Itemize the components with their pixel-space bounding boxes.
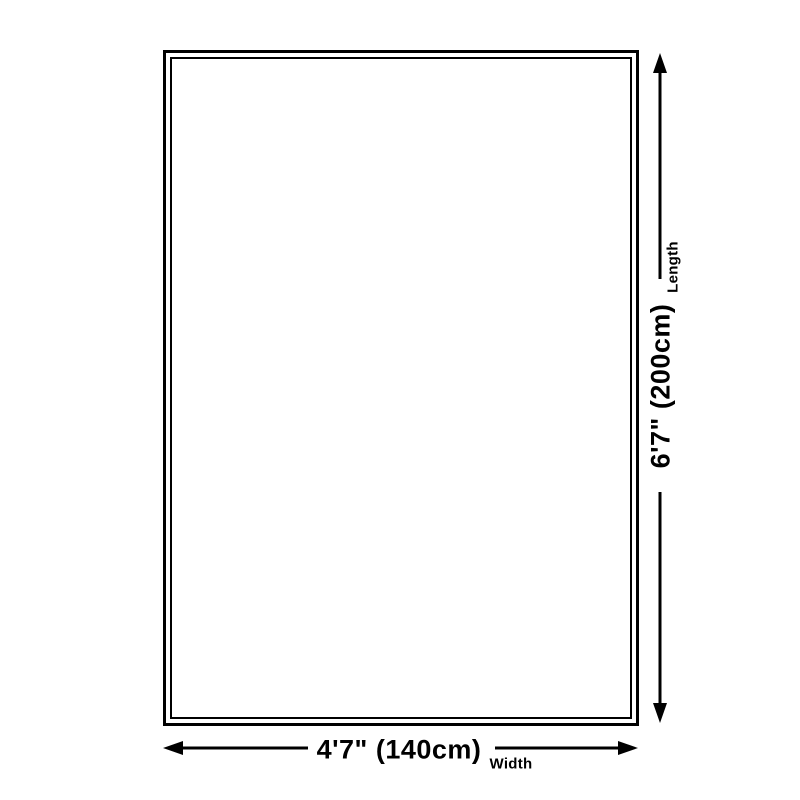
arrow-left-icon (163, 741, 183, 755)
arrow-up-icon (653, 53, 667, 73)
width-value: 4'7" (140cm) (317, 737, 482, 764)
length-label: Length (666, 241, 681, 293)
arrow-down-icon (653, 703, 667, 723)
arrow-right-icon (618, 741, 638, 755)
length-value: 6'7" (200cm) (648, 304, 675, 469)
rug-outline (163, 50, 639, 726)
size-diagram: 6'7" (200cm) Length 4'7" (140cm) Width (0, 0, 800, 800)
width-label: Width (489, 757, 532, 772)
rug-inner-border (170, 57, 632, 719)
